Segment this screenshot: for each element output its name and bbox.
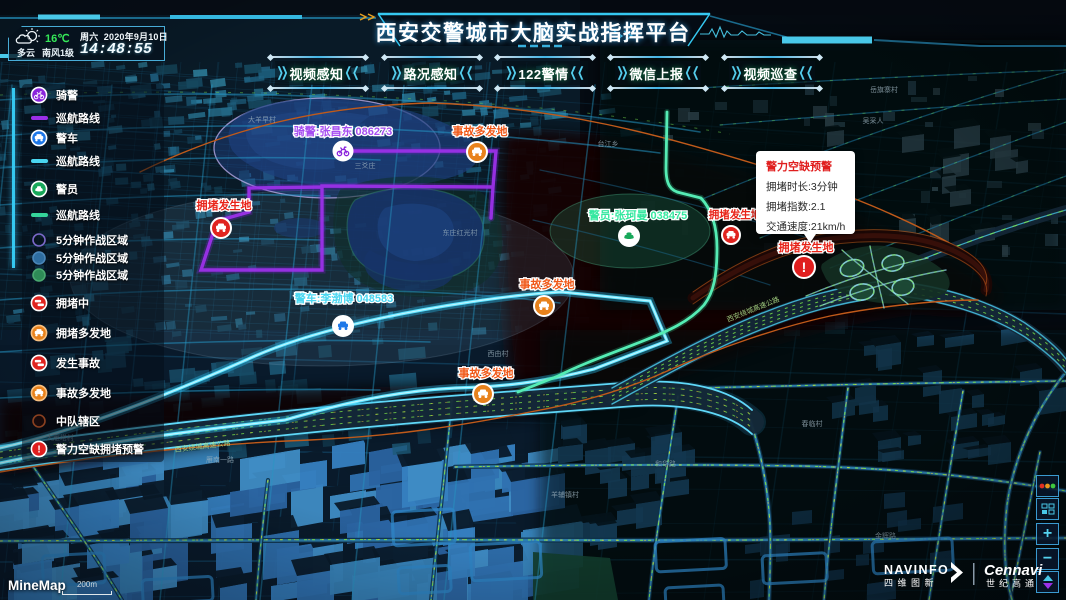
svg-text:世纪高通: 世纪高通 <box>986 578 1038 589</box>
svg-text:四维图新: 四维图新 <box>884 577 938 588</box>
svg-text:Cennavi: Cennavi <box>984 562 1043 579</box>
svg-text:NAVINFO: NAVINFO <box>884 563 949 577</box>
svg-text:!: ! <box>37 444 40 455</box>
